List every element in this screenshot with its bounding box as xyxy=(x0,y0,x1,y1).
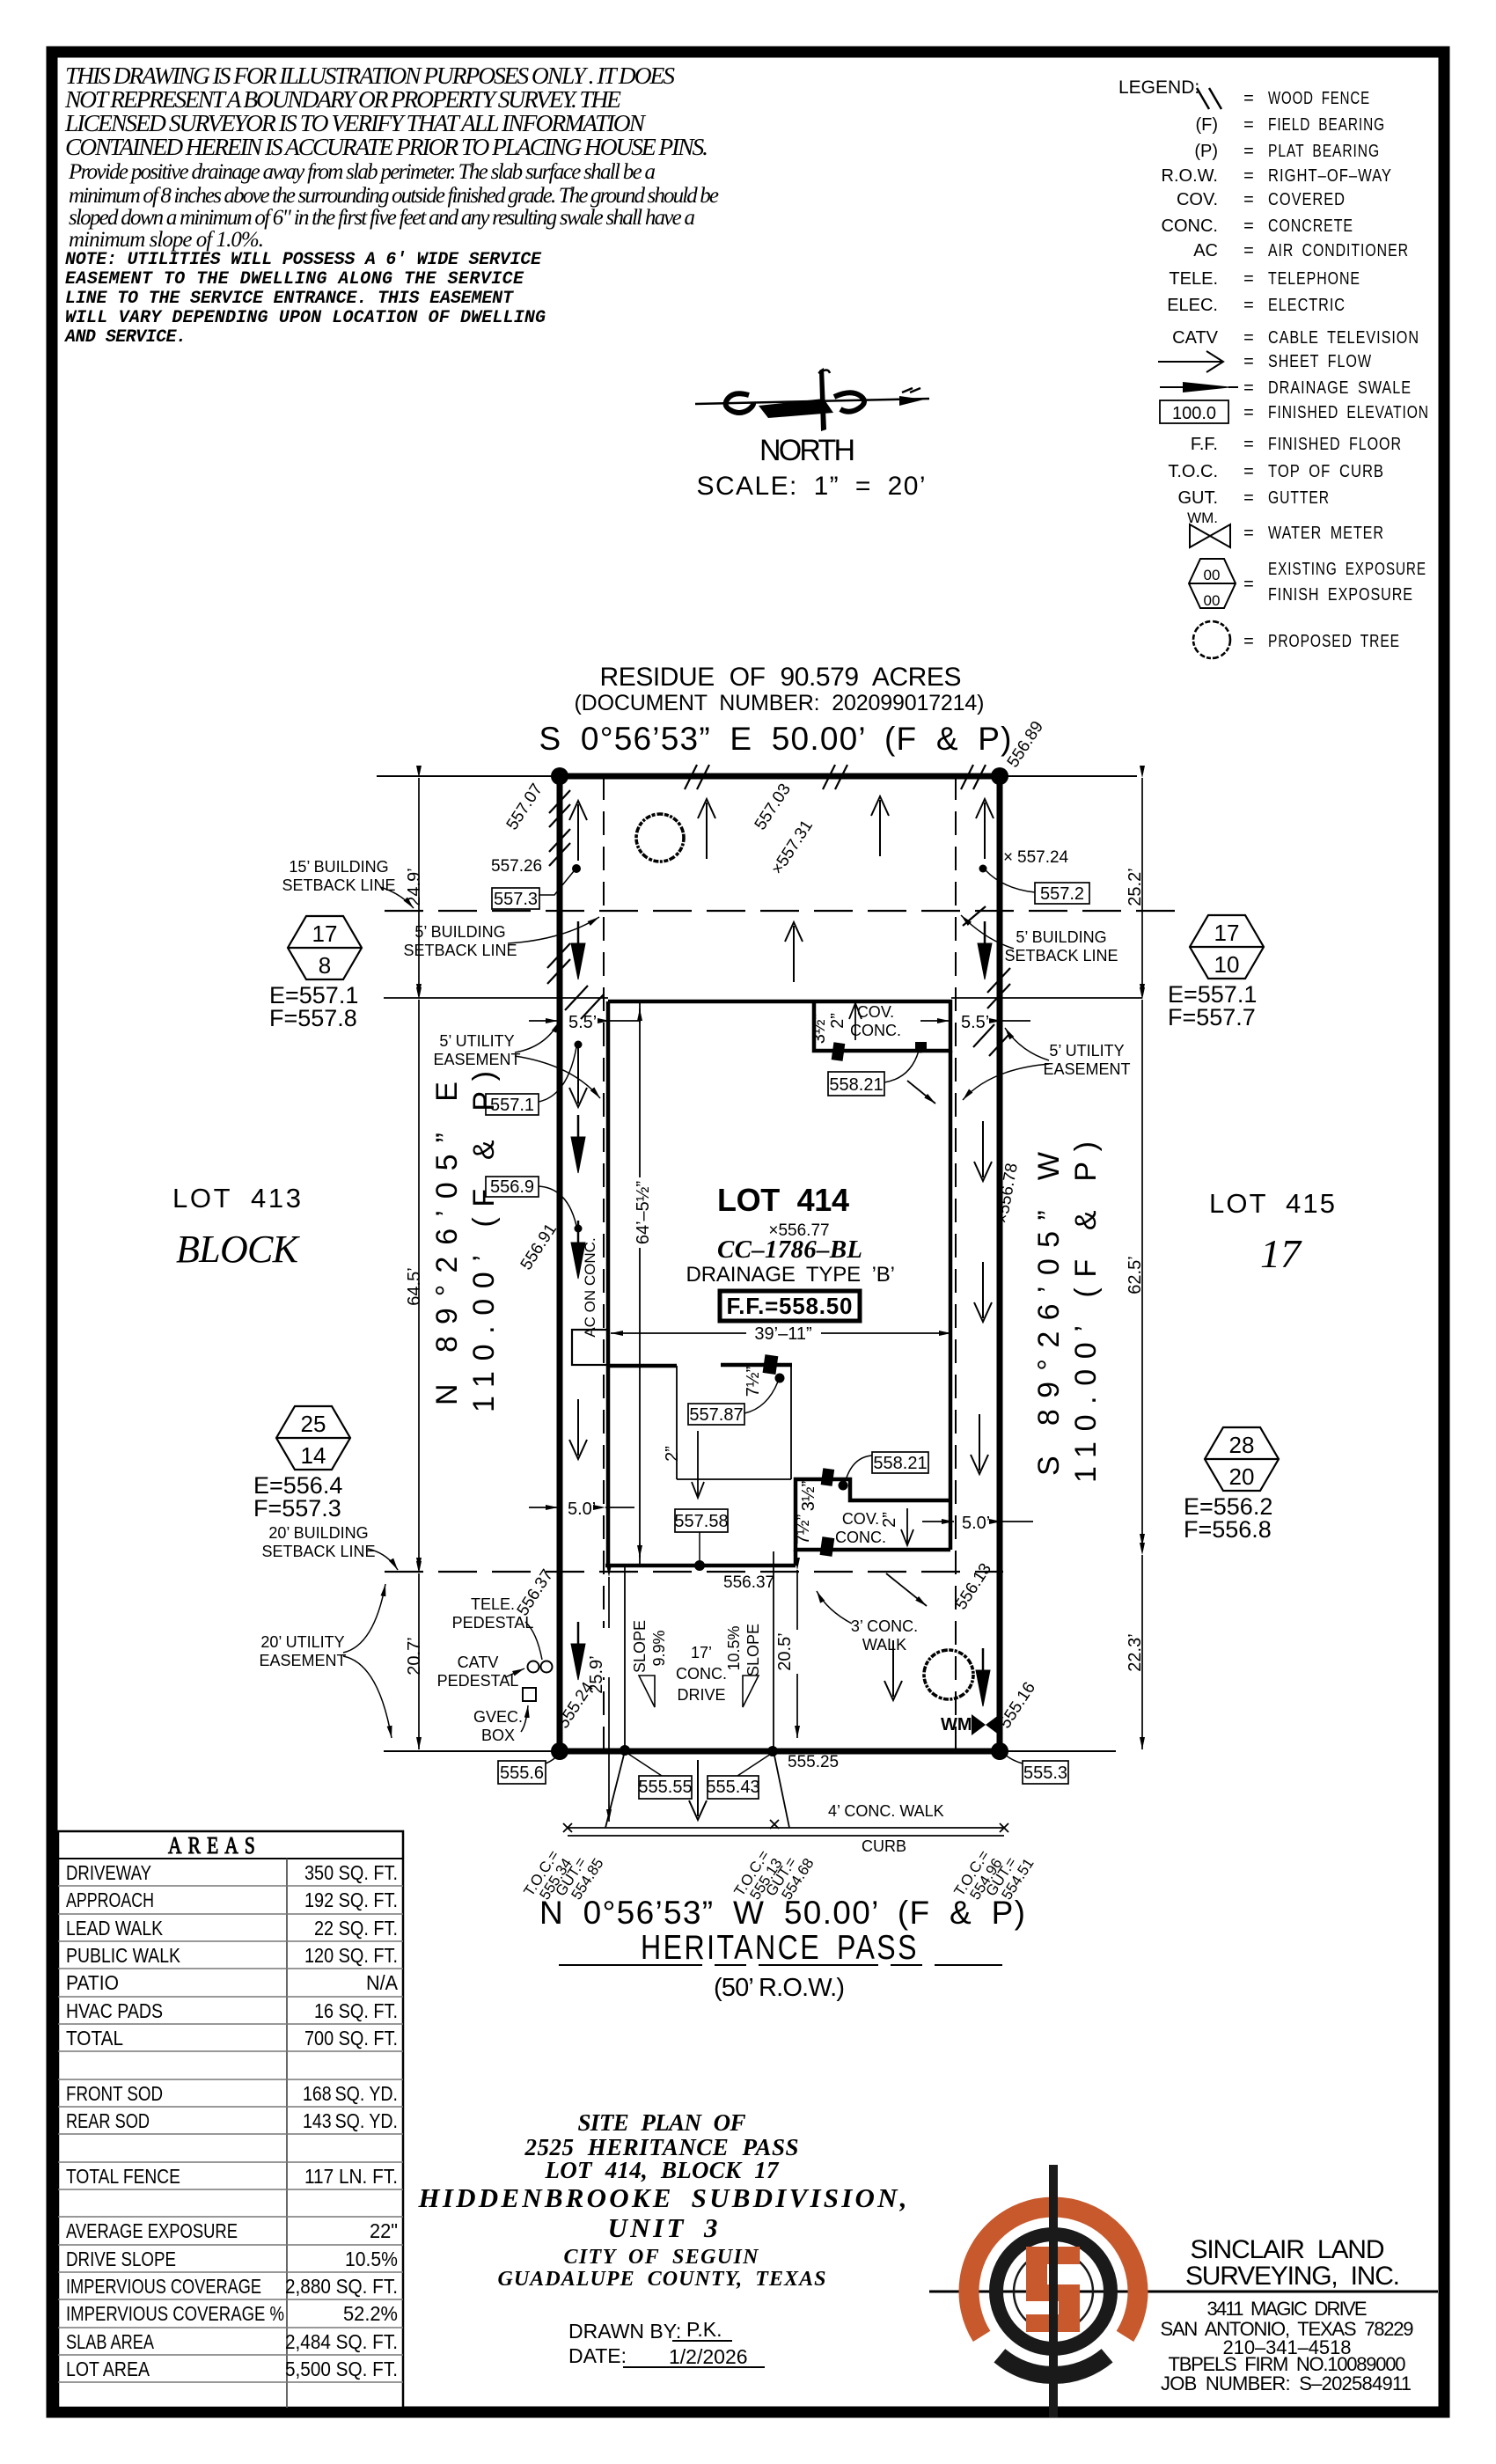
svg-text:8: 8 xyxy=(319,952,331,979)
svg-text:557.2: 557.2 xyxy=(1040,884,1084,904)
svg-text:F=557.3: F=557.3 xyxy=(253,1495,341,1522)
svg-text:S 89°26’05” W: S 89°26’05” W xyxy=(1032,1150,1066,1476)
svg-text:RESIDUE OF 90.579 ACRES: RESIDUE OF 90.579 ACRES xyxy=(600,663,964,692)
svg-text:555.25: 555.25 xyxy=(788,1753,839,1771)
svg-text:556.9: 556.9 xyxy=(490,1177,534,1197)
svg-text:TOP OF CURB: TOP OF CURB xyxy=(1268,462,1384,481)
svg-text:62.5’: 62.5’ xyxy=(1126,1256,1145,1294)
svg-text:22.3’: 22.3’ xyxy=(1126,1633,1145,1671)
svg-text:IMPERVIOUS COVERAGE: IMPERVIOUS COVERAGE xyxy=(66,2275,261,2298)
svg-text:R.O.W.: R.O.W. xyxy=(1162,166,1218,186)
svg-text:N 89°26’05” E: N 89°26’05” E xyxy=(430,1080,464,1405)
svg-text:HIDDENBROOKE SUBDIVISION,: HIDDENBROOKE SUBDIVISION, xyxy=(418,2182,909,2213)
svg-text:CONCRETE: CONCRETE xyxy=(1268,216,1353,236)
svg-text:P.K.: P.K. xyxy=(686,2318,722,2341)
svg-text:DRAWN BY:: DRAWN BY: xyxy=(568,2320,681,2343)
svg-text:20’ BUILDING: 20’ BUILDING xyxy=(268,1524,368,1542)
svg-text:(F): (F) xyxy=(1195,115,1218,135)
svg-text:=: = xyxy=(1243,403,1254,422)
svg-text:25.2’: 25.2’ xyxy=(1126,868,1145,906)
svg-text:CURB: CURB xyxy=(862,1837,906,1855)
svg-text:00: 00 xyxy=(1204,592,1221,609)
svg-text:LOT 413: LOT 413 xyxy=(172,1183,307,1214)
svg-text:APPROACH: APPROACH xyxy=(66,1888,154,1911)
svg-text:3411 MAGIC DRIVE: 3411 MAGIC DRIVE xyxy=(1207,2298,1368,2320)
svg-text:WOOD FENCE: WOOD FENCE xyxy=(1268,89,1370,108)
svg-text:10.5%: 10.5% xyxy=(725,1625,743,1670)
svg-text:TELEPHONE: TELEPHONE xyxy=(1268,269,1360,289)
svg-text:558.21: 558.21 xyxy=(873,1454,927,1473)
svg-text:=: = xyxy=(1243,296,1254,315)
svg-text:BOX: BOX xyxy=(481,1727,515,1744)
svg-text:557.3: 557.3 xyxy=(494,890,538,909)
svg-text:COV.: COV. xyxy=(842,1510,879,1528)
svg-text:17: 17 xyxy=(1214,920,1240,946)
svg-text:RIGHT–OF–WAY: RIGHT–OF–WAY xyxy=(1268,166,1392,186)
svg-text:SETBACK LINE: SETBACK LINE xyxy=(1004,947,1118,964)
svg-text:10: 10 xyxy=(1214,951,1240,978)
svg-text:HERITANCE PASS: HERITANCE PASS xyxy=(641,1929,919,1967)
svg-text:00: 00 xyxy=(1204,567,1221,583)
svg-text:WM.: WM. xyxy=(941,1715,977,1734)
svg-text:TOTAL: TOTAL xyxy=(66,2027,123,2050)
svg-text:GUTTER: GUTTER xyxy=(1268,488,1330,508)
svg-text:WILL VARY DEPENDING UPON LOCAT: WILL VARY DEPENDING UPON LOCATION OF DWE… xyxy=(65,308,546,328)
svg-text:LOT 414, BLOCK 17: LOT 414, BLOCK 17 xyxy=(545,2157,781,2183)
svg-text:1/2/2026: 1/2/2026 xyxy=(669,2345,748,2368)
svg-text:EASEMENT: EASEMENT xyxy=(433,1051,520,1068)
svg-text:557.03: 557.03 xyxy=(752,781,795,833)
svg-text:JOB NUMBER: S–202584911: JOB NUMBER: S–202584911 xyxy=(1161,2372,1412,2394)
svg-text:557.24: 557.24 xyxy=(1017,848,1069,867)
svg-text:IMPERVIOUS COVERAGE %: IMPERVIOUS COVERAGE % xyxy=(66,2302,284,2325)
svg-text:N/A: N/A xyxy=(366,1971,399,1994)
svg-text:FRONT SOD: FRONT SOD xyxy=(66,2082,163,2105)
svg-text:WATER METER: WATER METER xyxy=(1268,524,1384,543)
svg-text:64.5’: 64.5’ xyxy=(405,1267,424,1305)
svg-text:FIELD BEARING: FIELD BEARING xyxy=(1268,115,1385,135)
svg-text:SETBACK LINE: SETBACK LINE xyxy=(261,1543,375,1560)
svg-text:24.9’: 24.9’ xyxy=(405,868,424,906)
svg-text:DRAINAGE TYPE ’B’: DRAINAGE TYPE ’B’ xyxy=(686,1263,897,1287)
svg-text:9.9%: 9.9% xyxy=(650,1630,668,1666)
svg-text:5.5’: 5.5’ xyxy=(961,1013,989,1032)
svg-text:16 SQ. FT.: 16 SQ. FT. xyxy=(314,1999,398,2022)
svg-text:LEGEND:: LEGEND: xyxy=(1118,77,1199,98)
svg-text:7½”: 7½” xyxy=(794,1514,813,1544)
svg-text:LOT AREA: LOT AREA xyxy=(66,2358,150,2380)
svg-text:(50’ R.O.W.): (50’ R.O.W.) xyxy=(714,1974,846,2002)
svg-text:20’ UTILITY: 20’ UTILITY xyxy=(260,1633,344,1651)
svg-text:(P): (P) xyxy=(1194,142,1218,161)
svg-text:556.13: 556.13 xyxy=(952,1560,995,1613)
svg-text:minimum slope of 1.0%.: minimum slope of 1.0%. xyxy=(69,228,264,252)
svg-text:556.91: 556.91 xyxy=(517,1221,561,1273)
svg-text:CONC.: CONC. xyxy=(676,1665,727,1683)
svg-text:557.26: 557.26 xyxy=(491,857,542,876)
svg-text:17: 17 xyxy=(1260,1231,1302,1276)
svg-text:WM.: WM. xyxy=(1187,510,1218,526)
svg-text:LOT 415: LOT 415 xyxy=(1209,1188,1341,1219)
svg-text:DRIVE: DRIVE xyxy=(677,1686,725,1704)
svg-text:UNIT 3: UNIT 3 xyxy=(608,2212,720,2243)
svg-text:557.07: 557.07 xyxy=(503,781,546,833)
svg-text:3½”: 3½” xyxy=(799,1481,818,1511)
svg-text:39’–11”: 39’–11” xyxy=(754,1324,811,1344)
svg-text:F=556.8: F=556.8 xyxy=(1184,1516,1272,1543)
svg-text:Provide positive drainage away: Provide positive drainage away from slab… xyxy=(68,160,656,184)
svg-text:=: = xyxy=(1243,575,1254,594)
svg-text:TELE.: TELE. xyxy=(471,1595,515,1613)
svg-text:S 0°56’53” E 50.00’ (F & P): S 0°56’53” E 50.00’ (F & P) xyxy=(539,721,1014,757)
svg-text:EASEMENT: EASEMENT xyxy=(259,1652,346,1669)
svg-text:5.0’: 5.0’ xyxy=(568,1500,596,1519)
svg-text:SLOPE: SLOPE xyxy=(744,1624,762,1676)
svg-text:=: = xyxy=(1243,142,1254,161)
svg-text:700 SQ. FT.: 700 SQ. FT. xyxy=(304,2027,398,2050)
svg-text:GVEC.: GVEC. xyxy=(473,1708,523,1726)
svg-text:AVERAGE EXPOSURE: AVERAGE EXPOSURE xyxy=(66,2219,238,2242)
svg-text:GUT.: GUT. xyxy=(1177,488,1218,508)
svg-text:COV.: COV. xyxy=(1177,190,1218,209)
svg-text:CITY OF SEGUIN: CITY OF SEGUIN xyxy=(564,2246,760,2269)
svg-text:143 SQ. YD.: 143 SQ. YD. xyxy=(303,2109,398,2132)
svg-text:557.87: 557.87 xyxy=(689,1405,743,1425)
svg-text:350 SQ. FT.: 350 SQ. FT. xyxy=(304,1861,398,1884)
svg-text:NORTH: NORTH xyxy=(759,434,860,467)
svg-text:2”: 2” xyxy=(828,1013,847,1029)
svg-text:17’: 17’ xyxy=(691,1644,712,1661)
svg-text:555.55: 555.55 xyxy=(638,1778,692,1797)
svg-text:=: = xyxy=(1243,216,1254,236)
svg-text:557.58: 557.58 xyxy=(674,1512,728,1531)
svg-text:AIR CONDITIONER: AIR CONDITIONER xyxy=(1268,241,1409,260)
svg-text:192 SQ. FT.: 192 SQ. FT. xyxy=(304,1888,398,1911)
svg-text:557.1: 557.1 xyxy=(490,1096,534,1115)
svg-text:555.3: 555.3 xyxy=(1023,1764,1067,1783)
svg-text:CONC.: CONC. xyxy=(850,1022,901,1039)
svg-text:117 LN. FT.: 117 LN. FT. xyxy=(304,2165,398,2188)
svg-text:15’ BUILDING: 15’ BUILDING xyxy=(289,858,388,876)
svg-text:100.0: 100.0 xyxy=(1172,404,1216,423)
svg-text:AREAS: AREAS xyxy=(168,1832,261,1859)
svg-text:=: = xyxy=(1243,269,1254,289)
svg-text:LOT 414: LOT 414 xyxy=(717,1182,853,1218)
svg-text:LINE TO THE SERVICE ENTRANCE.: LINE TO THE SERVICE ENTRANCE. THIS EASEM… xyxy=(65,289,514,309)
svg-text:LEAD WALK: LEAD WALK xyxy=(66,1917,164,1940)
svg-text:DRIVEWAY: DRIVEWAY xyxy=(66,1861,151,1884)
svg-text:CONTAINED HEREIN IS ACCURATE P: CONTAINED HEREIN IS ACCURATE PRIOR TO PL… xyxy=(65,133,708,160)
svg-text:=: = xyxy=(1243,115,1254,135)
svg-text:HVAC PADS: HVAC PADS xyxy=(66,1999,163,2022)
svg-text:FINISH EXPOSURE: FINISH EXPOSURE xyxy=(1268,585,1413,605)
svg-text:SETBACK LINE: SETBACK LINE xyxy=(282,876,395,894)
svg-text:AC: AC xyxy=(1193,241,1218,260)
svg-text:=: = xyxy=(1243,241,1254,260)
svg-text:minimum of 8 inches above the: minimum of 8 inches above the surroundin… xyxy=(69,184,719,208)
svg-text:SINCLAIR LAND: SINCLAIR LAND xyxy=(1191,2235,1387,2264)
svg-text:=: = xyxy=(1243,89,1254,108)
svg-text:EXISTING EXPOSURE: EXISTING EXPOSURE xyxy=(1268,560,1426,579)
svg-text:NOTE: UTILITIES WILL POSSESS A: NOTE: UTILITIES WILL POSSESS A 6' WIDE S… xyxy=(65,250,542,270)
svg-text:N 0°56’53” W 50.00’ (F & P): N 0°56’53” W 50.00’ (F & P) xyxy=(539,1895,1027,1931)
svg-text:=: = xyxy=(1243,435,1254,454)
svg-text:20.5’: 20.5’ xyxy=(775,1632,795,1670)
svg-text:5’ UTILITY: 5’ UTILITY xyxy=(439,1032,514,1050)
svg-text:T.O.C.: T.O.C. xyxy=(1168,462,1218,481)
svg-text:COVERED: COVERED xyxy=(1268,190,1346,209)
svg-text:558.21: 558.21 xyxy=(829,1075,883,1095)
svg-text:=: = xyxy=(1243,632,1254,651)
svg-text:=: = xyxy=(1243,462,1254,481)
svg-text:=: = xyxy=(1243,488,1254,508)
svg-text:3’ CONC.: 3’ CONC. xyxy=(851,1617,918,1635)
svg-text:7½”: 7½” xyxy=(744,1367,763,1397)
svg-text:22 SQ. FT.: 22 SQ. FT. xyxy=(314,1917,398,1940)
svg-text:CABLE TELEVISION: CABLE TELEVISION xyxy=(1268,328,1419,348)
svg-text:555.43: 555.43 xyxy=(706,1778,759,1797)
svg-text:TELE.: TELE. xyxy=(1169,269,1218,289)
svg-text:CC–1786–BL: CC–1786–BL xyxy=(717,1236,863,1264)
svg-text:=: = xyxy=(1243,352,1254,371)
svg-text:CONC.: CONC. xyxy=(835,1529,886,1546)
svg-text:556.37: 556.37 xyxy=(723,1573,774,1592)
svg-text:ELEC.: ELEC. xyxy=(1167,296,1218,315)
svg-text:AC ON CONC.: AC ON CONC. xyxy=(582,1237,598,1337)
svg-text:5.5’: 5.5’ xyxy=(568,1013,597,1032)
svg-text:(DOCUMENT NUMBER: 202099017214: (DOCUMENT NUMBER: 202099017214) xyxy=(575,691,986,715)
svg-text:CATV: CATV xyxy=(1172,328,1219,348)
svg-text:F=557.7: F=557.7 xyxy=(1168,1004,1256,1030)
svg-text:PLAT BEARING: PLAT BEARING xyxy=(1268,142,1380,161)
svg-text:5.0’: 5.0’ xyxy=(962,1514,990,1533)
svg-text:=: = xyxy=(1243,378,1254,398)
svg-text:10.5%: 10.5% xyxy=(345,2248,398,2270)
svg-text:PROPOSED TREE: PROPOSED TREE xyxy=(1268,632,1400,651)
svg-text:WALK: WALK xyxy=(862,1636,906,1654)
svg-text:=: = xyxy=(1243,328,1254,348)
svg-text:SURVEYING, INC.: SURVEYING, INC. xyxy=(1185,2262,1402,2291)
svg-text:5,500 SQ. FT.: 5,500 SQ. FT. xyxy=(285,2358,398,2380)
svg-text:SHEET FLOW: SHEET FLOW xyxy=(1268,352,1372,371)
svg-text:=: = xyxy=(1243,190,1254,209)
svg-text:17: 17 xyxy=(312,920,338,947)
svg-text:CATV: CATV xyxy=(458,1654,499,1671)
svg-text:AND SERVICE.: AND SERVICE. xyxy=(63,327,187,348)
svg-text:110.00’ (F & P): 110.00’ (F & P) xyxy=(1069,1140,1103,1483)
svg-text:110.00’ (F & P): 110.00’ (F & P) xyxy=(467,1069,501,1412)
svg-text:=: = xyxy=(1243,166,1254,186)
svg-text:DRIVE SLOPE: DRIVE SLOPE xyxy=(66,2248,176,2270)
svg-text:GUADALUPE COUNTY, TEXAS: GUADALUPE COUNTY, TEXAS xyxy=(498,2268,828,2291)
svg-text:5’ BUILDING: 5’ BUILDING xyxy=(414,923,505,941)
svg-text:20: 20 xyxy=(1229,1463,1255,1490)
svg-text:64’–5½”: 64’–5½” xyxy=(634,1181,653,1244)
svg-text:sloped down a minimum of 6" in: sloped down a minimum of 6" in the first… xyxy=(69,206,695,230)
svg-text:2,880 SQ. FT.: 2,880 SQ. FT. xyxy=(285,2275,398,2298)
svg-text:SLAB AREA: SLAB AREA xyxy=(66,2330,155,2353)
svg-text:168 SQ. YD.: 168 SQ. YD. xyxy=(303,2082,398,2105)
svg-text:SETBACK LINE: SETBACK LINE xyxy=(403,942,517,959)
svg-text:EASEMENT TO THE DWELLING ALONG: EASEMENT TO THE DWELLING ALONG THE SERVI… xyxy=(65,269,524,290)
svg-text:5’ BUILDING: 5’ BUILDING xyxy=(1016,928,1106,946)
svg-text:SITE PLAN OF: SITE PLAN OF xyxy=(578,2109,748,2136)
svg-text:4’ CONC. WALK: 4’ CONC. WALK xyxy=(828,1802,944,1820)
svg-text:TOTAL FENCE: TOTAL FENCE xyxy=(66,2165,180,2188)
svg-text:2,484 SQ. FT.: 2,484 SQ. FT. xyxy=(285,2330,398,2353)
svg-text:CONC.: CONC. xyxy=(1162,216,1218,236)
svg-text:F.F.=558.50: F.F.=558.50 xyxy=(727,1293,853,1319)
svg-text:PEDESTAL: PEDESTAL xyxy=(437,1672,519,1690)
svg-text:5’ UTILITY: 5’ UTILITY xyxy=(1049,1042,1124,1060)
svg-text:2”: 2” xyxy=(880,1512,899,1528)
svg-text:556.37: 556.37 xyxy=(514,1566,557,1619)
svg-text:555.6: 555.6 xyxy=(500,1764,544,1783)
svg-text:25: 25 xyxy=(301,1411,326,1437)
svg-text:FINISHED FLOOR: FINISHED FLOOR xyxy=(1268,435,1402,454)
svg-text:F.F.: F.F. xyxy=(1191,435,1218,454)
svg-text:COV.: COV. xyxy=(857,1003,894,1021)
svg-text:×: × xyxy=(1003,848,1013,867)
svg-text:22": 22" xyxy=(370,2219,398,2242)
svg-text:ELECTRIC: ELECTRIC xyxy=(1268,296,1346,315)
svg-text:DRAINAGE SWALE: DRAINAGE SWALE xyxy=(1268,378,1412,398)
svg-text:28: 28 xyxy=(1229,1432,1255,1458)
svg-text:3½”: 3½” xyxy=(810,1014,829,1044)
svg-text:=: = xyxy=(1243,524,1254,543)
svg-text:DATE:: DATE: xyxy=(568,2344,627,2367)
svg-text:PEDESTAL: PEDESTAL xyxy=(452,1614,534,1632)
svg-text:PATIO: PATIO xyxy=(66,1971,119,1994)
svg-text:2”: 2” xyxy=(663,1446,682,1462)
svg-text:F=557.8: F=557.8 xyxy=(269,1005,357,1031)
svg-text:×557.31: ×557.31 xyxy=(768,817,817,877)
svg-text:REAR SOD: REAR SOD xyxy=(66,2109,150,2132)
svg-text:SLOPE: SLOPE xyxy=(631,1620,649,1673)
svg-text:BLOCK: BLOCK xyxy=(176,1228,304,1271)
svg-text:FINISHED ELEVATION: FINISHED ELEVATION xyxy=(1268,403,1429,422)
svg-text:120 SQ. FT.: 120 SQ. FT. xyxy=(304,1944,398,1967)
svg-text:52.2%: 52.2% xyxy=(343,2302,398,2325)
svg-text:14: 14 xyxy=(301,1442,326,1469)
svg-text:SCALE: 1” = 20’: SCALE: 1” = 20’ xyxy=(697,472,927,501)
svg-text:20.7’: 20.7’ xyxy=(405,1637,424,1675)
svg-text:EASEMENT: EASEMENT xyxy=(1043,1060,1130,1078)
svg-text:PUBLIC WALK: PUBLIC WALK xyxy=(66,1944,181,1967)
